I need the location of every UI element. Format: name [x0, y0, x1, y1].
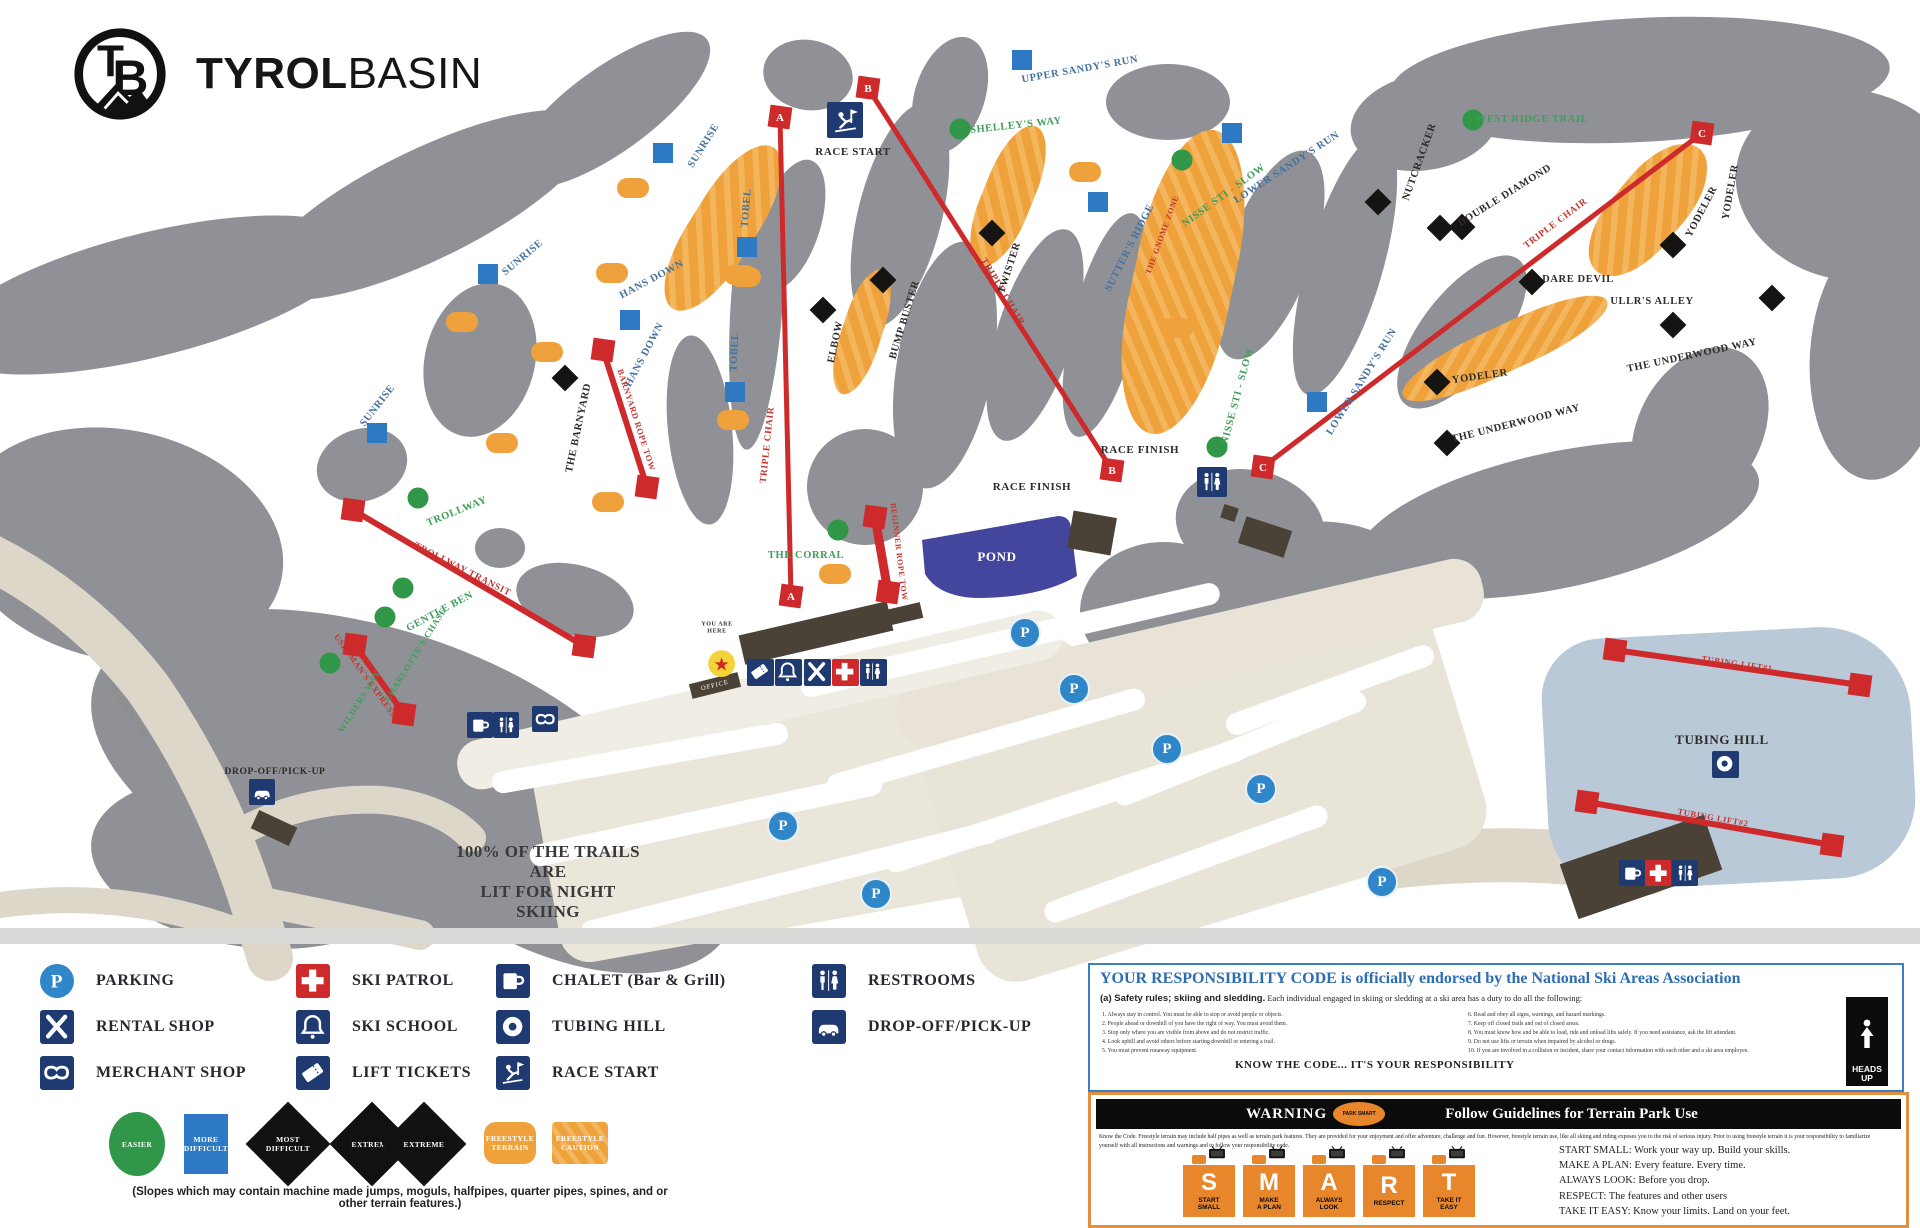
restroom-icon: [493, 712, 519, 738]
legend-most-difficult: MOST DIFFICULT: [246, 1102, 331, 1187]
park-smart-mini-icons: [1312, 1151, 1346, 1164]
easier-trail-marker: [828, 520, 849, 541]
lift-letter: A: [787, 591, 795, 603]
map-label: TUBING HILL: [1675, 733, 1769, 747]
x-icon: [40, 1010, 74, 1044]
legend-item: MERCHANT SHOP: [40, 1056, 246, 1090]
freestyle-feature-marker: [819, 564, 851, 584]
legend-item-label: RESTROOMS: [868, 972, 976, 990]
restroom-icon: [1672, 860, 1698, 886]
parking-marker: P: [1245, 773, 1277, 805]
smart-card: TTAKE IT EASY: [1423, 1151, 1475, 1217]
smart-card-label: RESPECT: [1374, 1200, 1405, 1207]
legend-freestyle-terrain: FREESTYLE TERRAIN: [484, 1122, 536, 1164]
lift-terminal: [863, 505, 888, 530]
race-icon: [496, 1056, 530, 1090]
map-label: DARE DEVIL: [1542, 274, 1614, 286]
smart-card-body: MMAKE A PLAN: [1243, 1165, 1295, 1217]
night-skiing-note: 100% OF THE TRAILS ARE LIT FOR NIGHT SKI…: [448, 842, 648, 922]
freestyle-feature-marker: [592, 492, 624, 512]
freestyle-feature-marker: [717, 410, 749, 430]
legend-extreme-diamond-2: EXTREME: [382, 1102, 467, 1187]
easier-trail-marker: [408, 488, 429, 509]
svg-text:★: ★: [714, 655, 730, 676]
bell-icon: [296, 1010, 330, 1044]
freestyle-feature-marker: [1161, 318, 1193, 338]
legend-item-label: SKI PATROL: [352, 972, 454, 990]
legend-easier: EASIER: [109, 1112, 165, 1176]
smart-descriptions: START SMALL: Work your way up. Build you…: [1559, 1143, 1790, 1219]
legend-item: RACE START: [496, 1056, 659, 1090]
legend-caption: (Slopes which may contain machine made j…: [120, 1186, 680, 1210]
legend-item-label: TUBING HILL: [552, 1018, 666, 1036]
safety-rule: 5. You must prevent runaway equipment.: [1102, 1047, 1452, 1056]
legend-item: CHALET (Bar & Grill): [496, 964, 726, 998]
freestyle-feature-marker: [617, 178, 649, 198]
easier-trail-marker: [950, 119, 971, 140]
safety-rule: 4. Look uphill and avoid others before s…: [1102, 1038, 1452, 1047]
tv-icon: [1208, 1146, 1226, 1164]
smart-card: MMAKE A PLAN: [1243, 1151, 1295, 1217]
lift-letter: B: [864, 83, 872, 95]
lift-line: [780, 117, 791, 596]
car-icon: [812, 1010, 846, 1044]
star-icon: ★: [705, 647, 739, 681]
x-icon: [804, 659, 831, 686]
legend-item: DROP-OFF/PICK-UP: [812, 1010, 1031, 1044]
parking-marker: P: [1151, 733, 1183, 765]
map-label: RACE FINISH: [1101, 444, 1179, 456]
cross-icon: [1645, 860, 1671, 886]
legend-item: SKI SCHOOL: [296, 1010, 458, 1044]
lift-terminal: [591, 338, 616, 363]
park-smart-tag-icon: [1312, 1155, 1326, 1164]
park-smart-tag-icon: [1252, 1155, 1266, 1164]
svg-text:P: P: [51, 972, 63, 993]
lift-line: [1587, 802, 1832, 845]
tb-logo-icon: T B: [72, 26, 168, 122]
legend-item-label: LIFT TICKETS: [352, 1064, 471, 1082]
legend-item-label: RENTAL SHOP: [96, 1018, 215, 1036]
smart-cards: SSTART SMALLMMAKE A PLANAALWAYS LOOKRRES…: [1183, 1151, 1475, 1217]
restroom-icon: [860, 659, 887, 686]
lift-letter: B: [1108, 465, 1116, 477]
park-smart-oval: PARK SMART: [1333, 1102, 1385, 1126]
map-label: POND: [977, 550, 1016, 564]
freestyle-feature-marker: [729, 267, 761, 287]
lift-terminal: [572, 634, 597, 659]
smart-card: AALWAYS LOOK: [1303, 1151, 1355, 1217]
ticket-icon: [296, 1056, 330, 1090]
more-difficult-trail-marker: [1012, 50, 1032, 70]
lift-terminal: [1848, 673, 1873, 698]
warning-bar-title: Follow Guidelines for Terrain Park Use: [1445, 1106, 1698, 1123]
park-smart-mini-icons: [1252, 1151, 1286, 1164]
smart-card: RRESPECT: [1363, 1151, 1415, 1217]
safety-rule: 6. Read and obey all signs, warnings, an…: [1468, 1011, 1828, 1020]
smart-card-label: TAKE IT EASY: [1437, 1197, 1462, 1212]
smart-card-body: SSTART SMALL: [1183, 1165, 1235, 1217]
know-the-code-footer: KNOW THE CODE... IT'S YOUR RESPONSIBILIT…: [1235, 1059, 1514, 1071]
park-smart-tag-icon: [1372, 1155, 1386, 1164]
lift-letter: C: [1259, 462, 1267, 474]
easier-trail-marker: [320, 653, 341, 674]
more-difficult-trail-marker: [1307, 392, 1327, 412]
smart-description-line: MAKE A PLAN: Every feature. Every time.: [1559, 1158, 1790, 1173]
freestyle-feature-marker: [446, 312, 478, 332]
resort-name: TYROLBASIN: [196, 49, 482, 99]
park-smart-mini-icons: [1432, 1151, 1466, 1164]
responsibility-subtitle: (a) Safety rules; skiing and sledding. E…: [1100, 993, 1582, 1004]
map-label: RACE START: [815, 146, 890, 158]
lift-terminal: [1603, 638, 1628, 663]
map-label: ULLR'S ALLEY: [1610, 296, 1693, 308]
map-label: YOU ARE HERE: [701, 621, 732, 634]
smart-letter: T: [1442, 1171, 1457, 1195]
smart-card-label: START SMALL: [1198, 1197, 1220, 1212]
smart-card: SSTART SMALL: [1183, 1151, 1235, 1217]
legend-freestyle-caution: FREESTYLE CAUTION: [552, 1122, 608, 1164]
heads-up-badge: HEADS UP: [1846, 997, 1888, 1086]
legend-item-label: SKI SCHOOL: [352, 1018, 458, 1036]
freestyle-feature-marker: [1069, 162, 1101, 182]
parking-marker: P: [1058, 673, 1090, 705]
legend: PPARKINGRENTAL SHOPMERCHANT SHOPSKI PATR…: [0, 944, 1080, 1228]
legend-item: PPARKING: [40, 964, 175, 998]
trail-map-stage: OFFICE AABBCC PPPPPPP ★ SUNRISESUNRISESU…: [0, 0, 1920, 1228]
p-icon: P: [40, 964, 74, 998]
freestyle-feature-marker: [531, 342, 563, 362]
more-difficult-trail-marker: [1222, 123, 1242, 143]
safety-rule: 8. You must know how and be able to load…: [1468, 1029, 1828, 1038]
smart-card-body: RRESPECT: [1363, 1165, 1415, 1217]
mug-icon: [1619, 860, 1645, 886]
smart-card-label: MAKE A PLAN: [1257, 1197, 1281, 1212]
tube-icon: [496, 1010, 530, 1044]
legend-item: RENTAL SHOP: [40, 1010, 215, 1044]
smart-card-label: ALWAYS LOOK: [1316, 1197, 1343, 1212]
goggles-icon: [532, 706, 558, 732]
more-difficult-trail-marker: [478, 264, 498, 284]
smart-description-line: TAKE IT EASY: Know your limits. Land on …: [1559, 1204, 1790, 1219]
mug-icon: [467, 712, 493, 738]
more-difficult-trail-marker: [1088, 192, 1108, 212]
map-label: DROP-OFF/PICK-UP: [225, 767, 326, 777]
easier-trail-marker: [1172, 150, 1193, 171]
safety-rule: 7. Keep off closed trails and out of clo…: [1468, 1020, 1828, 1029]
tyrol-basin-logo: T B TYROLBASIN: [72, 26, 482, 122]
lift-letter: C: [1698, 128, 1706, 140]
smart-letter: S: [1201, 1171, 1217, 1195]
tv-icon: [1448, 1146, 1466, 1164]
map-label: WEST RIDGE TRAIL: [1476, 114, 1589, 126]
safety-rules-left: 1. Always stay in control. You must be a…: [1102, 1011, 1452, 1056]
park-smart-mini-icons: [1372, 1151, 1406, 1164]
cross-icon: [296, 964, 330, 998]
tv-icon: [1328, 1146, 1346, 1164]
parking-marker: P: [1366, 866, 1398, 898]
freestyle-feature-marker: [596, 263, 628, 283]
lift-letter: A: [776, 112, 784, 124]
car-icon: [249, 779, 275, 805]
more-difficult-trail-marker: [725, 382, 745, 402]
smart-card-body: AALWAYS LOOK: [1303, 1165, 1355, 1217]
lift-terminal: [1575, 790, 1600, 815]
safety-rule: 2. People ahead or downhill of you have …: [1102, 1020, 1452, 1029]
legend-item: SKI PATROL: [296, 964, 454, 998]
legend-item-label: PARKING: [96, 972, 175, 990]
park-smart-tag-icon: [1432, 1155, 1446, 1164]
warning-label: WARNING: [1246, 1106, 1327, 1123]
tv-icon: [1388, 1146, 1406, 1164]
smart-letter: M: [1259, 1171, 1279, 1195]
ticket-icon: [747, 659, 774, 686]
smart-description-line: START SMALL: Work your way up. Build you…: [1559, 1143, 1790, 1158]
smart-card-body: TTAKE IT EASY: [1423, 1165, 1475, 1217]
legend-item: LIFT TICKETS: [296, 1056, 471, 1090]
lift-terminal: [635, 475, 660, 500]
heads-up-person-icon: [1855, 1011, 1879, 1063]
lift-terminal: [1820, 833, 1845, 858]
park-smart-mini-icons: [1192, 1151, 1226, 1164]
smart-letter: R: [1380, 1174, 1397, 1198]
cross-icon: [832, 659, 859, 686]
warning-bar: WARNING PARK SMART Follow Guidelines for…: [1096, 1099, 1901, 1129]
legend-item: RESTROOMS: [812, 964, 976, 998]
map-label: TOBEL: [728, 332, 742, 372]
bell-icon: [775, 659, 802, 686]
freestyle-feature-marker: [486, 433, 518, 453]
map-label: THE CORRAL: [768, 550, 844, 562]
tube-icon: [1712, 751, 1739, 778]
more-difficult-trail-marker: [737, 237, 757, 257]
safety-rules-right: 6. Read and obey all signs, warnings, an…: [1468, 1011, 1828, 1056]
safety-rule: 9. Do not use lifts or terrain when impa…: [1468, 1038, 1828, 1047]
parking-marker: P: [767, 810, 799, 842]
terrain-park-warning-panel: WARNING PARK SMART Follow Guidelines for…: [1088, 1092, 1909, 1228]
safety-rule: 10. If you are involved in a collision o…: [1468, 1047, 1828, 1056]
park-smart-tag-icon: [1192, 1155, 1206, 1164]
legend-item: TUBING HILL: [496, 1010, 666, 1044]
race-icon: [827, 102, 863, 138]
mug-icon: [496, 964, 530, 998]
easier-trail-marker: [375, 607, 396, 628]
restroom-icon: [1197, 467, 1227, 497]
legend-item-label: DROP-OFF/PICK-UP: [868, 1018, 1031, 1036]
lift-terminal: [341, 498, 366, 523]
safety-rule: 1. Always stay in control. You must be a…: [1102, 1011, 1452, 1020]
tv-icon: [1268, 1146, 1286, 1164]
responsibility-title: YOUR RESPONSIBILITY CODE is officially e…: [1100, 970, 1741, 988]
map-label: RACE FINISH: [993, 481, 1071, 493]
responsibility-code-panel: YOUR RESPONSIBILITY CODE is officially e…: [1088, 963, 1904, 1092]
easier-trail-marker: [393, 578, 414, 599]
legend-item-label: MERCHANT SHOP: [96, 1064, 246, 1082]
more-difficult-trail-marker: [620, 310, 640, 330]
legend-more-difficult: MORE DIFFICULT: [184, 1114, 228, 1174]
restroom-icon: [812, 964, 846, 998]
smart-description-line: RESPECT: The features and other users: [1559, 1189, 1790, 1204]
more-difficult-trail-marker: [367, 423, 387, 443]
smart-description-line: ALWAYS LOOK: Before you drop.: [1559, 1173, 1790, 1188]
parking-marker: P: [1009, 617, 1041, 649]
legend-item-label: CHALET (Bar & Grill): [552, 972, 726, 990]
parking-marker: P: [860, 878, 892, 910]
smart-letter: A: [1320, 1171, 1337, 1195]
more-difficult-trail-marker: [653, 143, 673, 163]
legend-item-label: RACE START: [552, 1064, 659, 1082]
safety-rule: 3. Stop only where you are visible from …: [1102, 1029, 1452, 1038]
goggles-icon: [40, 1056, 74, 1090]
